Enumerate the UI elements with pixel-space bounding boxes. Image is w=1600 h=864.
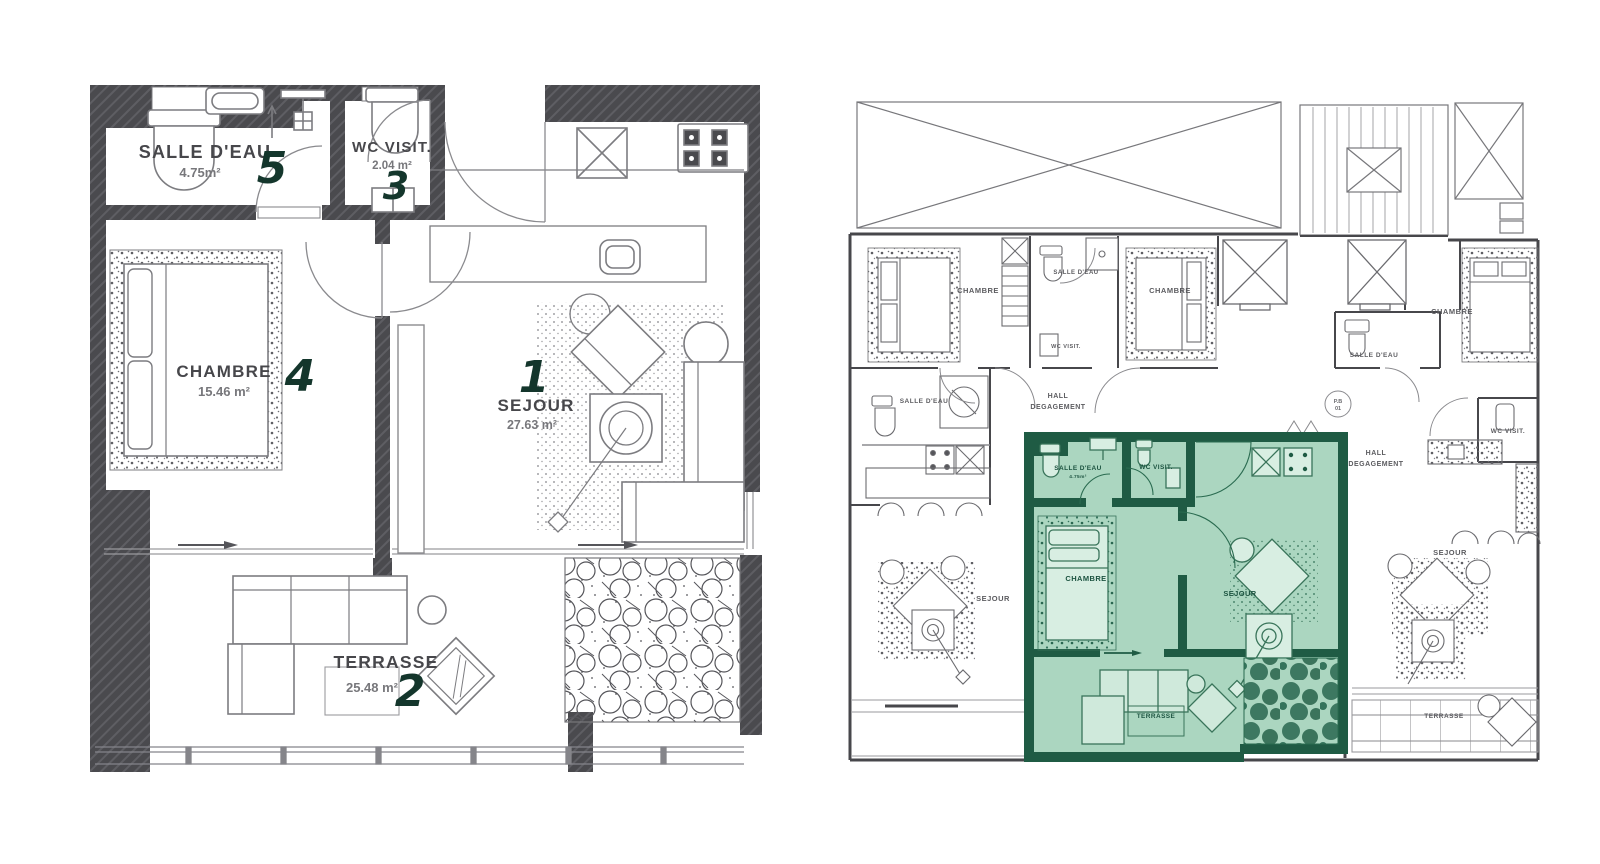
highlighted-unit: SALLE D'EAU 4.75m² WC VISIT. CHAMBRE SEJ… [1024, 432, 1348, 762]
unit-chambre-label: CHAMBRE [1065, 574, 1106, 583]
terrace-railing [95, 747, 744, 764]
chambre-number: 4 [284, 351, 316, 402]
kp-salle-eau-right: SALLE D'EAU [1350, 352, 1399, 359]
stove-icon [678, 124, 748, 172]
kp-sejour-right: SEJOUR [1433, 548, 1467, 557]
door-badge-line1: P.B [1334, 399, 1342, 405]
kp-salle-eau-left: SALLE D'EAU [900, 398, 949, 405]
unit-wc-visit-label: WC VISIT. [1139, 464, 1173, 471]
kp-hall-left-2: DEGAGEMENT [1030, 404, 1085, 411]
kp-terrasse-right: TERRASSE [1424, 713, 1464, 720]
kitchen-left-unit [866, 446, 990, 516]
elevators [1223, 240, 1406, 310]
door-badge-line2: 01 [1335, 406, 1341, 412]
wardrobe [398, 325, 424, 553]
closet-strip [1002, 238, 1028, 326]
bed [110, 250, 282, 470]
salle-eau-area: 4.75m² [179, 165, 221, 180]
sejour-area: 27.63 m² [507, 418, 557, 432]
roof-lightwells [857, 102, 1523, 233]
bed-top-left [868, 248, 960, 362]
kp-wc-visit-right: WC VISIT. [1491, 428, 1525, 435]
chambre-label: CHAMBRE [176, 362, 271, 381]
garden-planting [565, 558, 740, 722]
salle-eau-number: 5 [257, 143, 288, 194]
highlighted-garden [1244, 658, 1338, 744]
sejour-right-unit [1345, 440, 1540, 758]
kp-salle-eau-top-middle: SALLE D'EAU [1053, 270, 1098, 276]
wc-visit-label: WC VISIT. [352, 139, 432, 156]
floor-plan-sheet: SALLE D'EAU 4.75m² 5 WC VISIT. 2.04 m² 3… [0, 0, 1600, 864]
kp-hall-right-2: DEGAGEMENT [1348, 461, 1403, 468]
kp-chambre-top-left: CHAMBRE [957, 286, 999, 295]
kp-sejour-left: SEJOUR [976, 594, 1010, 603]
terrasse-number: 2 [395, 666, 426, 717]
right-plan: P.B 01 [850, 102, 1540, 762]
kp-chambre-far-right: CHAMBRE [1431, 307, 1473, 316]
kp-hall-left-1: HALL [1048, 393, 1069, 400]
sejour-label: SEJOUR [497, 396, 574, 415]
bed-top-right [1126, 248, 1216, 360]
unit-salle-eau-label: SALLE D'EAU [1054, 465, 1101, 472]
wc-visit-number: 3 [383, 164, 409, 208]
kp-hall-right-1: HALL [1366, 450, 1387, 457]
bed-far-right [1462, 248, 1538, 362]
terrasse-area: 25.48 m² [346, 680, 399, 695]
unit-terrasse-label: TERRASSE [1137, 713, 1176, 720]
entry-door-badge: P.B 01 [1325, 391, 1351, 417]
chambre-area: 15.46 m² [198, 384, 251, 399]
kp-chambre-top-right: CHAMBRE [1149, 286, 1191, 295]
unit-salle-eau-area: 4.75m² [1069, 474, 1087, 480]
stairwell [1300, 105, 1448, 235]
kp-wc-visit-top-middle: WC VISIT. [1051, 344, 1081, 350]
salle-eau-label: SALLE D'EAU [139, 142, 272, 162]
unit-sejour-label: SEJOUR [1223, 589, 1256, 598]
sejour-furniture [535, 302, 744, 542]
sejour-left-unit [878, 556, 975, 684]
left-plan: SALLE D'EAU 4.75m² 5 WC VISIT. 2.04 m² 3… [90, 85, 762, 772]
